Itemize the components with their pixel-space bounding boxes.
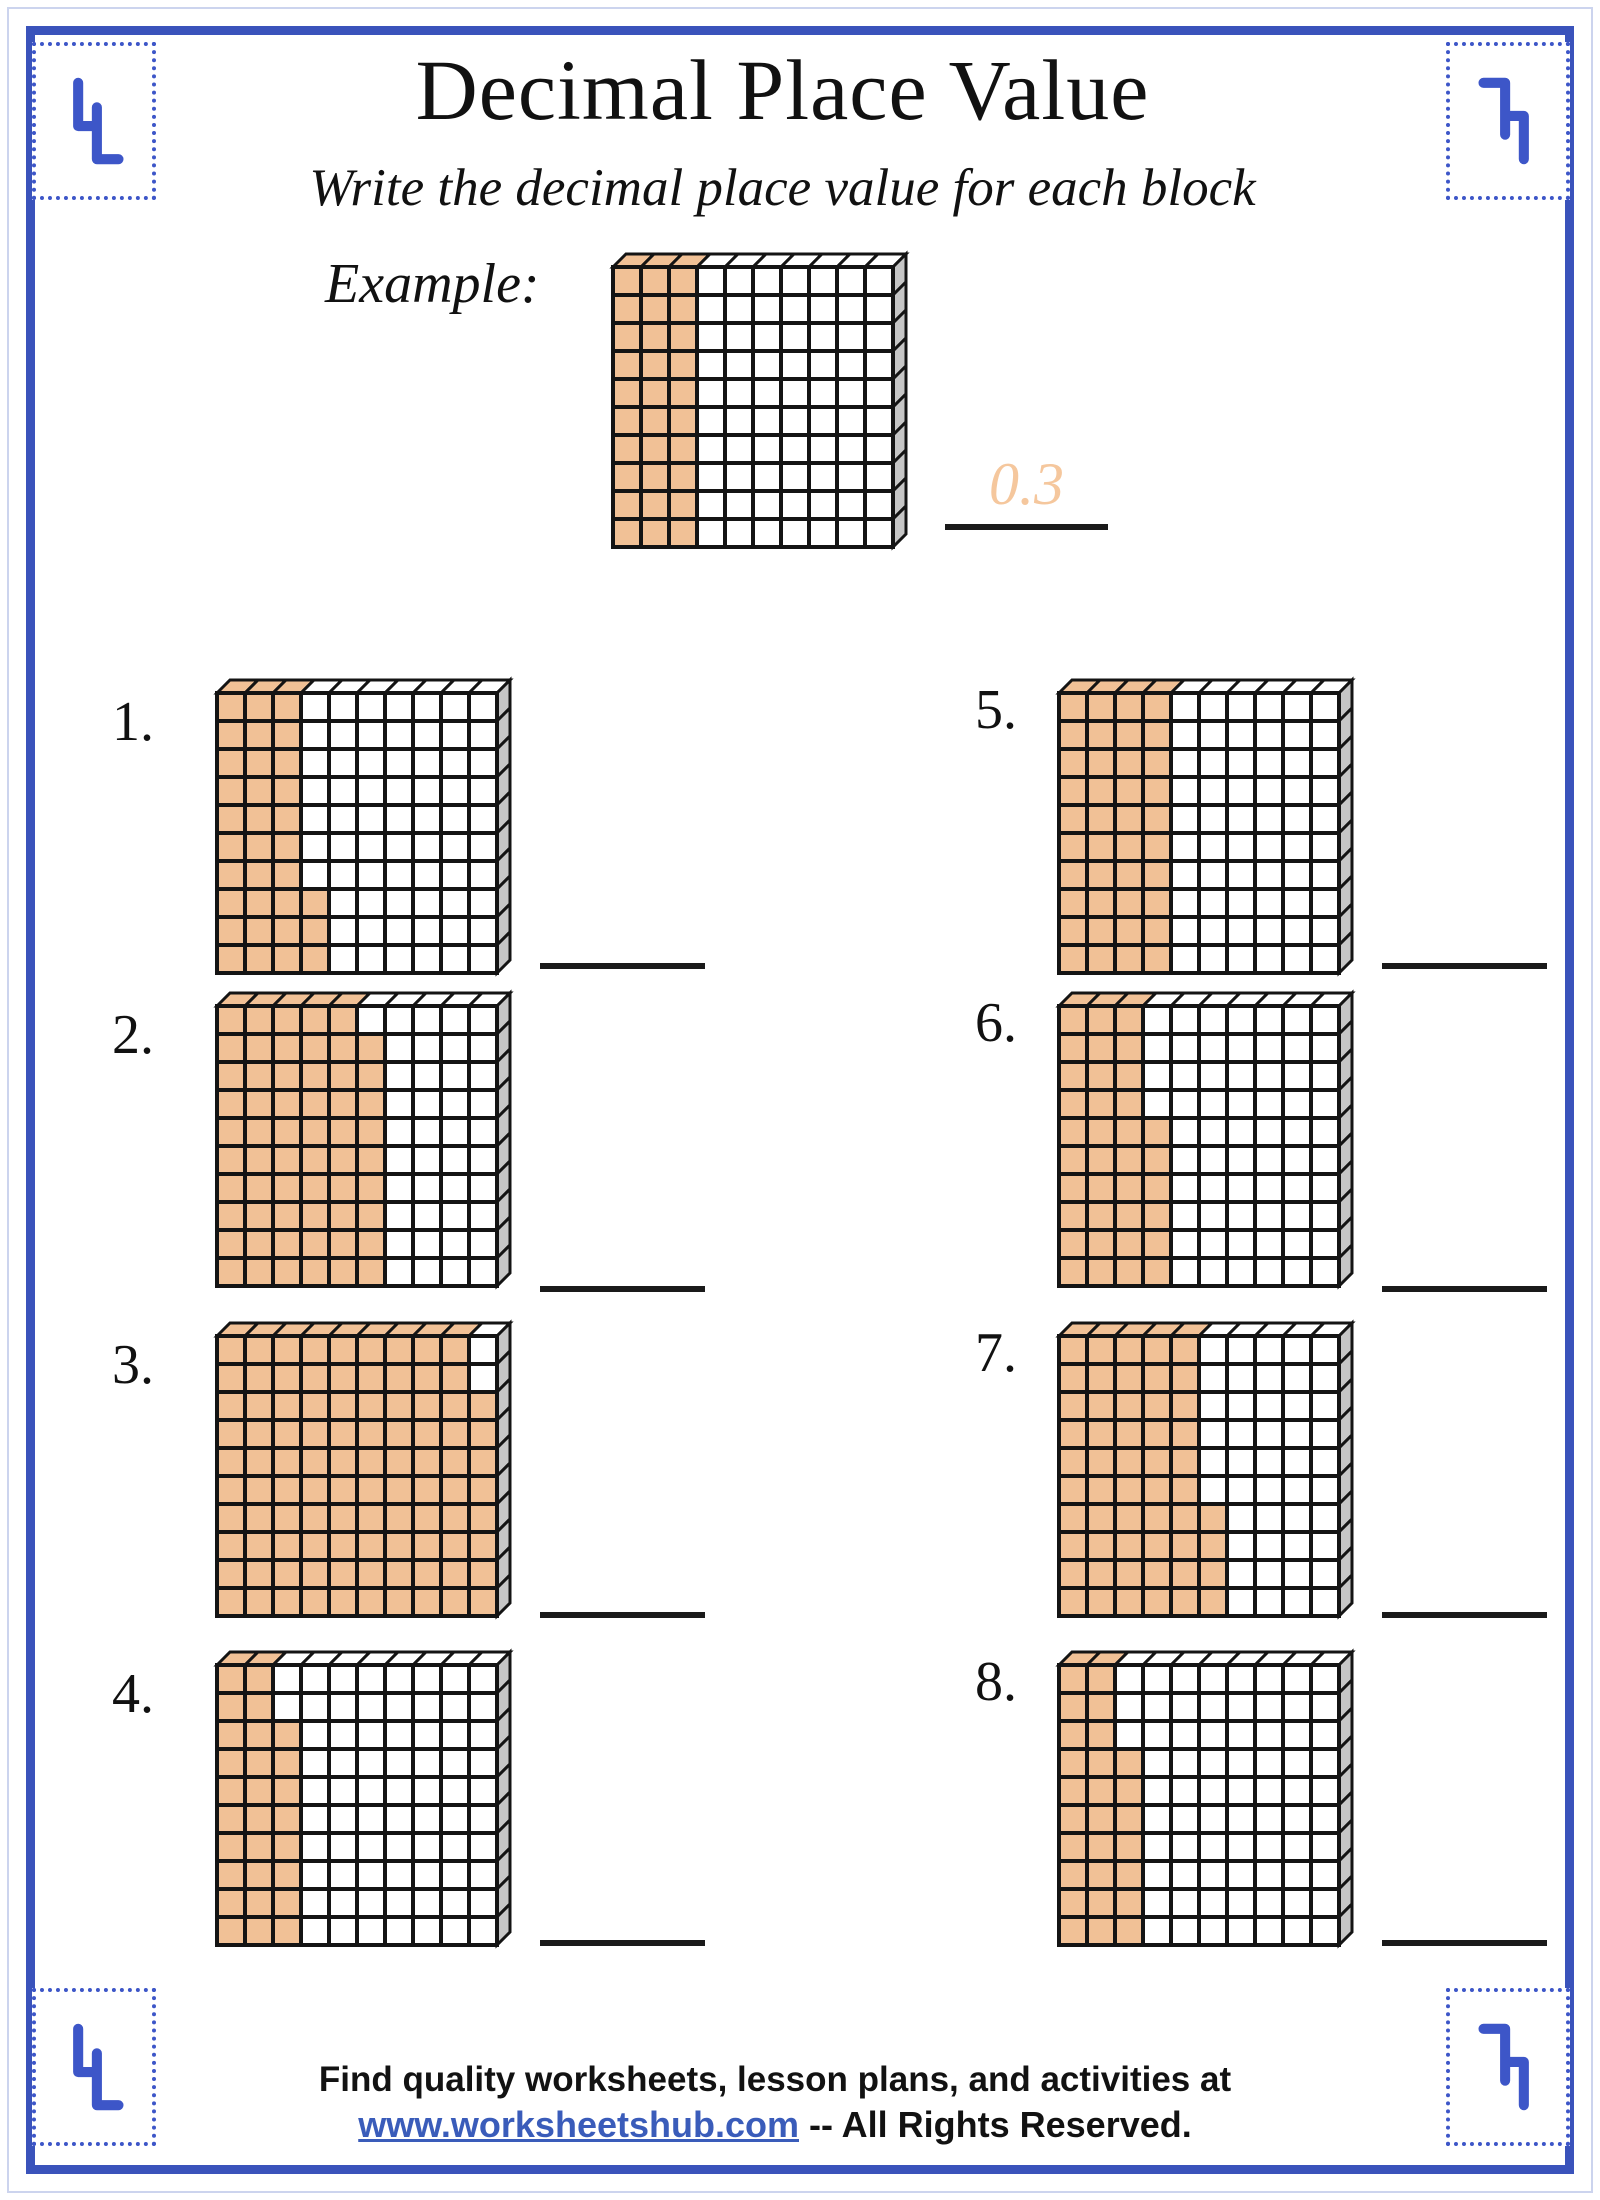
corner-stamp-bottom-right (1446, 1988, 1570, 2146)
corner-stamp-top-right (1446, 42, 1570, 200)
example-answer-text: 0.3 (945, 450, 1108, 519)
base-ten-block-8 (1055, 1633, 1375, 1949)
footer-link[interactable]: www.worksheetshub.com (358, 2104, 799, 2145)
problem-number-6: 6. (975, 991, 1017, 1055)
problem-number-5: 5. (975, 678, 1017, 742)
answer-blank-5 (1382, 963, 1547, 969)
example-answer-blank (945, 524, 1108, 530)
answer-blank-3 (540, 1612, 705, 1618)
page-title: Decimal Place Value (0, 40, 1565, 140)
base-ten-block-example (609, 235, 929, 551)
corner-stamp-top-left (32, 42, 156, 200)
base-ten-block-2 (213, 974, 533, 1290)
base-ten-block-3 (213, 1304, 533, 1620)
answer-blank-8 (1382, 1940, 1547, 1946)
answer-blank-4 (540, 1940, 705, 1946)
worksheetshub-logo-icon (1472, 2008, 1544, 2126)
corner-stamp-bottom-left (32, 1988, 156, 2146)
problem-number-1: 1. (112, 690, 154, 754)
problem-number-3: 3. (112, 1333, 154, 1397)
problem-number-7: 7. (975, 1321, 1017, 1385)
problem-number-8: 8. (975, 1650, 1017, 1714)
example-label: Example: (325, 252, 540, 316)
answer-blank-6 (1382, 1286, 1547, 1292)
worksheetshub-logo-icon (58, 2008, 130, 2126)
footer-rights-text: -- All Rights Reserved. (799, 2104, 1192, 2145)
base-ten-block-7 (1055, 1304, 1375, 1620)
worksheetshub-logo-icon (1472, 62, 1544, 180)
page-subtitle: Write the decimal place value for each b… (0, 158, 1565, 218)
answer-blank-7 (1382, 1612, 1547, 1618)
worksheetshub-logo-icon (58, 62, 130, 180)
problem-number-4: 4. (112, 1662, 154, 1726)
base-ten-block-4 (213, 1633, 533, 1949)
base-ten-block-5 (1055, 661, 1375, 977)
base-ten-block-1 (213, 661, 533, 977)
footer-text: Find quality worksheets, lesson plans, a… (0, 2058, 1550, 2102)
footer: Find quality worksheets, lesson plans, a… (0, 2058, 1550, 2148)
base-ten-block-6 (1055, 974, 1375, 1290)
problem-number-2: 2. (112, 1003, 154, 1067)
answer-blank-2 (540, 1286, 705, 1292)
worksheet-page: Decimal Place Value Write the decimal pl… (0, 0, 1600, 2200)
answer-blank-1 (540, 963, 705, 969)
